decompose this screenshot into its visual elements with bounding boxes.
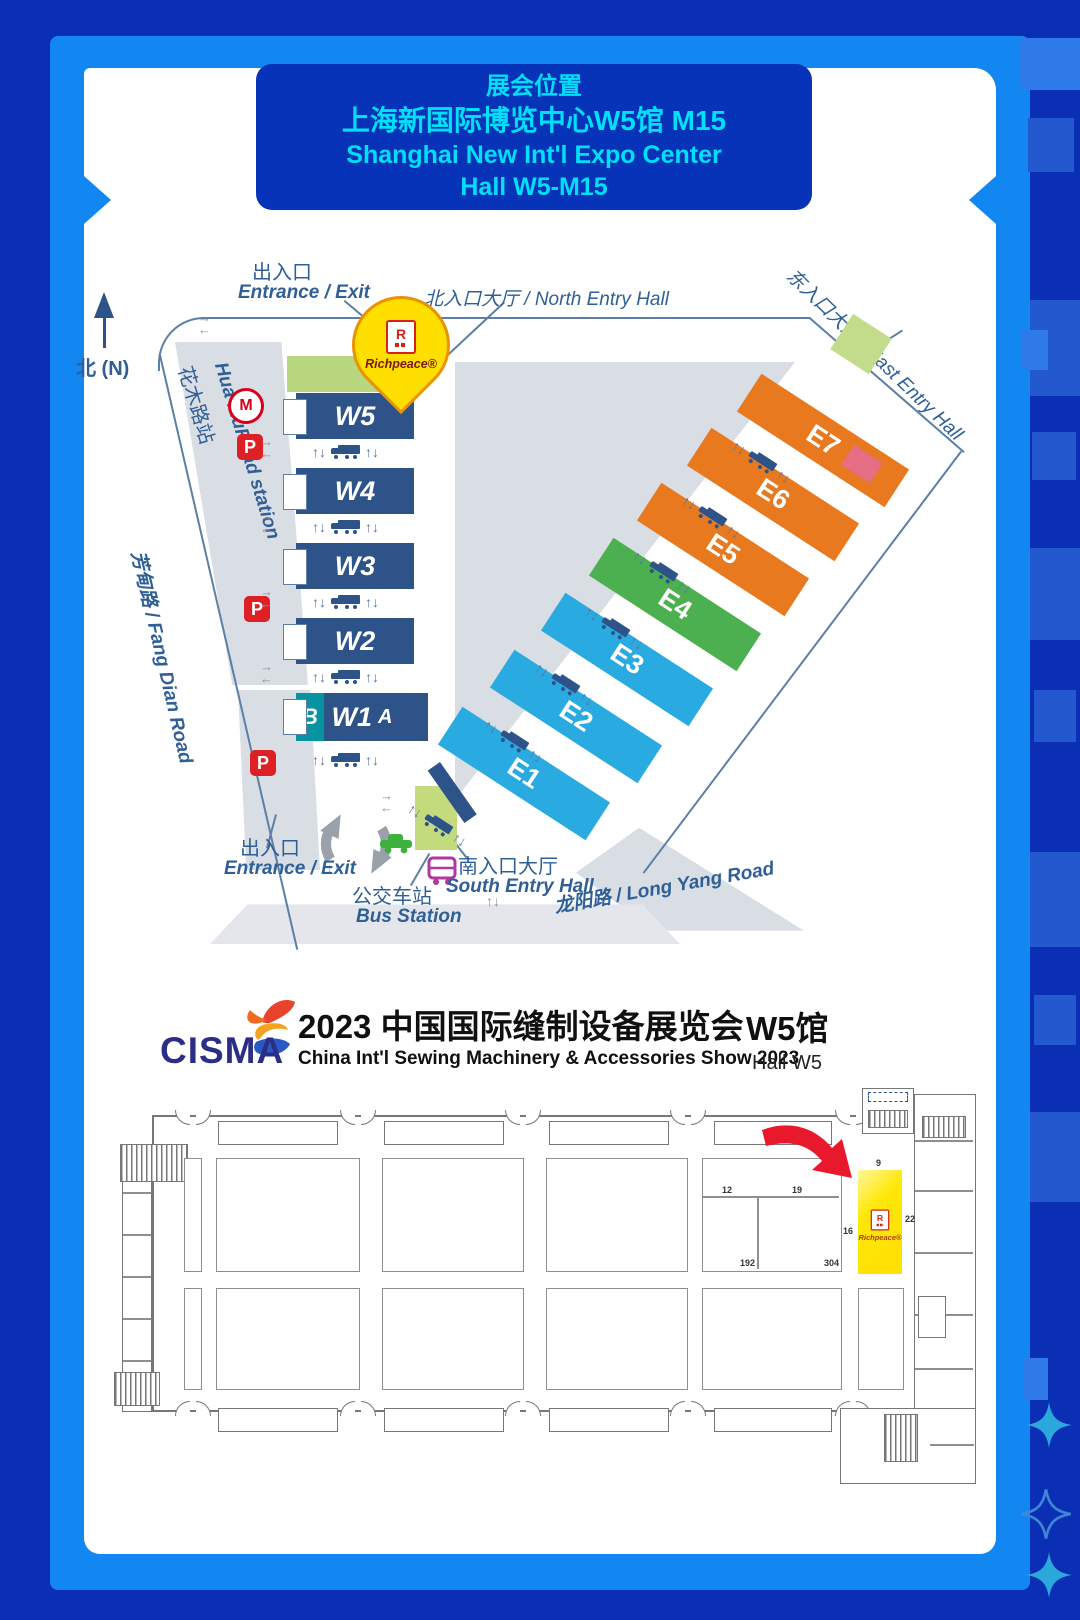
stairs-icon	[120, 1144, 188, 1182]
window-strip	[868, 1092, 908, 1102]
booth-number: 12	[722, 1185, 732, 1195]
booth-divider	[703, 1196, 839, 1198]
room-divider	[915, 1190, 973, 1192]
door-icon	[505, 1110, 541, 1125]
booth-block	[382, 1158, 524, 1272]
stairs-icon	[868, 1110, 908, 1128]
booth-strip	[184, 1288, 202, 1390]
room-divider	[123, 1318, 151, 1320]
booth-block	[858, 1288, 904, 1390]
stairs-icon	[884, 1414, 918, 1462]
room-divider	[930, 1444, 974, 1446]
stairs-icon	[922, 1116, 966, 1138]
vestibule	[714, 1408, 832, 1432]
booth-divider	[757, 1196, 759, 1269]
room-divider	[915, 1252, 973, 1254]
door-icon	[670, 1401, 706, 1416]
room-divider	[123, 1234, 151, 1236]
expo-location-poster: { "colors":{"frame_outer":"#0a2fb5","fra…	[0, 0, 1080, 1620]
stairs-icon	[114, 1372, 160, 1406]
vestibule	[384, 1121, 504, 1145]
door-icon	[175, 1110, 211, 1125]
booth-block	[382, 1288, 524, 1390]
booth-brand: Richpeace®	[858, 1233, 901, 1242]
door-icon	[340, 1401, 376, 1416]
room-divider	[123, 1276, 151, 1278]
pin-content: R Richpeace®	[355, 299, 447, 391]
room-divider	[915, 1140, 973, 1142]
booth-number: 192	[740, 1258, 755, 1268]
richpeace-r: R	[877, 1213, 883, 1222]
floor-plan: 12 19 192 304 16 9 22 R Richpeace®	[0, 0, 1080, 1620]
door-icon	[670, 1110, 706, 1125]
door-icon	[175, 1401, 211, 1416]
vestibule	[218, 1408, 338, 1432]
booth-block	[546, 1288, 688, 1390]
door-icon	[505, 1401, 541, 1416]
vestibule	[384, 1408, 504, 1432]
door-icon	[340, 1110, 376, 1125]
room-divider	[915, 1368, 973, 1370]
room-divider	[123, 1192, 151, 1194]
booth-number: 9	[876, 1158, 881, 1168]
vestibule	[549, 1408, 669, 1432]
booth-number: 22	[905, 1214, 915, 1224]
richpeace-r: R	[396, 327, 406, 341]
booth-block	[546, 1158, 688, 1272]
booth-strip	[184, 1158, 202, 1272]
booth-block	[702, 1288, 842, 1390]
room-divider	[123, 1360, 151, 1362]
pin-brand: Richpeace®	[365, 357, 437, 371]
booth-number: 16	[843, 1226, 853, 1236]
vestibule	[218, 1121, 338, 1145]
richpeace-logo-icon: R	[871, 1209, 890, 1230]
booth-block	[216, 1158, 360, 1272]
red-arrow-icon	[756, 1118, 866, 1190]
booth-block	[216, 1288, 360, 1390]
service-room	[918, 1296, 946, 1338]
richpeace-logo-icon: R	[386, 320, 416, 354]
vestibule	[549, 1121, 669, 1145]
booth-number: 304	[824, 1258, 839, 1268]
